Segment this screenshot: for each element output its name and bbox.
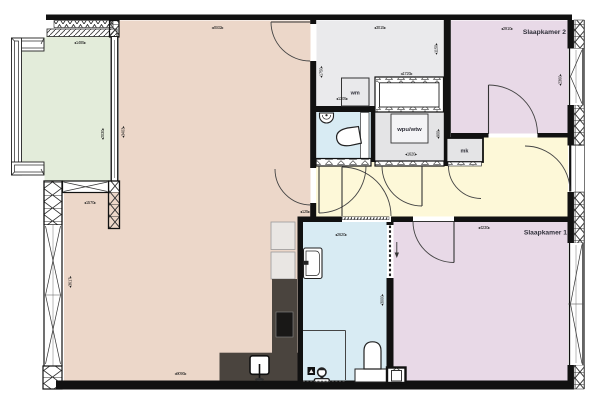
svg-text:◂3000▸: ◂3000▸ bbox=[380, 294, 385, 306]
svg-text:◂1485▸: ◂1485▸ bbox=[74, 40, 86, 45]
svg-text:◂3403▸: ◂3403▸ bbox=[121, 126, 126, 138]
svg-text:◂125▸: ◂125▸ bbox=[300, 209, 310, 214]
svg-text:wpu/wtw: wpu/wtw bbox=[396, 127, 422, 133]
svg-text:◂1620▸: ◂1620▸ bbox=[405, 152, 417, 157]
svg-text:◂2910▸: ◂2910▸ bbox=[501, 26, 513, 31]
svg-text:◂1305▸: ◂1305▸ bbox=[336, 96, 348, 101]
svg-text:◂4230▸: ◂4230▸ bbox=[478, 225, 490, 230]
svg-text:Slaapkamer 1: Slaapkamer 1 bbox=[524, 230, 567, 237]
svg-text:◂1720▸: ◂1720▸ bbox=[400, 71, 412, 76]
svg-text:◂1570▸: ◂1570▸ bbox=[84, 200, 96, 205]
svg-text:wm: wm bbox=[350, 91, 360, 97]
svg-text:◂3015▸: ◂3015▸ bbox=[374, 25, 386, 30]
svg-text:◂2030▸: ◂2030▸ bbox=[100, 128, 105, 140]
svg-text:◂9090▸: ◂9090▸ bbox=[174, 371, 186, 376]
svg-text:◂2620▸: ◂2620▸ bbox=[335, 232, 347, 237]
svg-text:◂1750▸: ◂1750▸ bbox=[319, 66, 324, 78]
svg-text:◂4932▸: ◂4932▸ bbox=[211, 25, 223, 30]
svg-text:◂2360▸: ◂2360▸ bbox=[558, 74, 563, 86]
svg-text:◂1150▸: ◂1150▸ bbox=[434, 43, 439, 55]
svg-text:◂900▸: ◂900▸ bbox=[436, 129, 441, 139]
svg-text:mk: mk bbox=[461, 149, 470, 155]
svg-text:◂3617▸: ◂3617▸ bbox=[68, 276, 73, 288]
svg-text:Slaapkamer 2: Slaapkamer 2 bbox=[523, 29, 566, 36]
